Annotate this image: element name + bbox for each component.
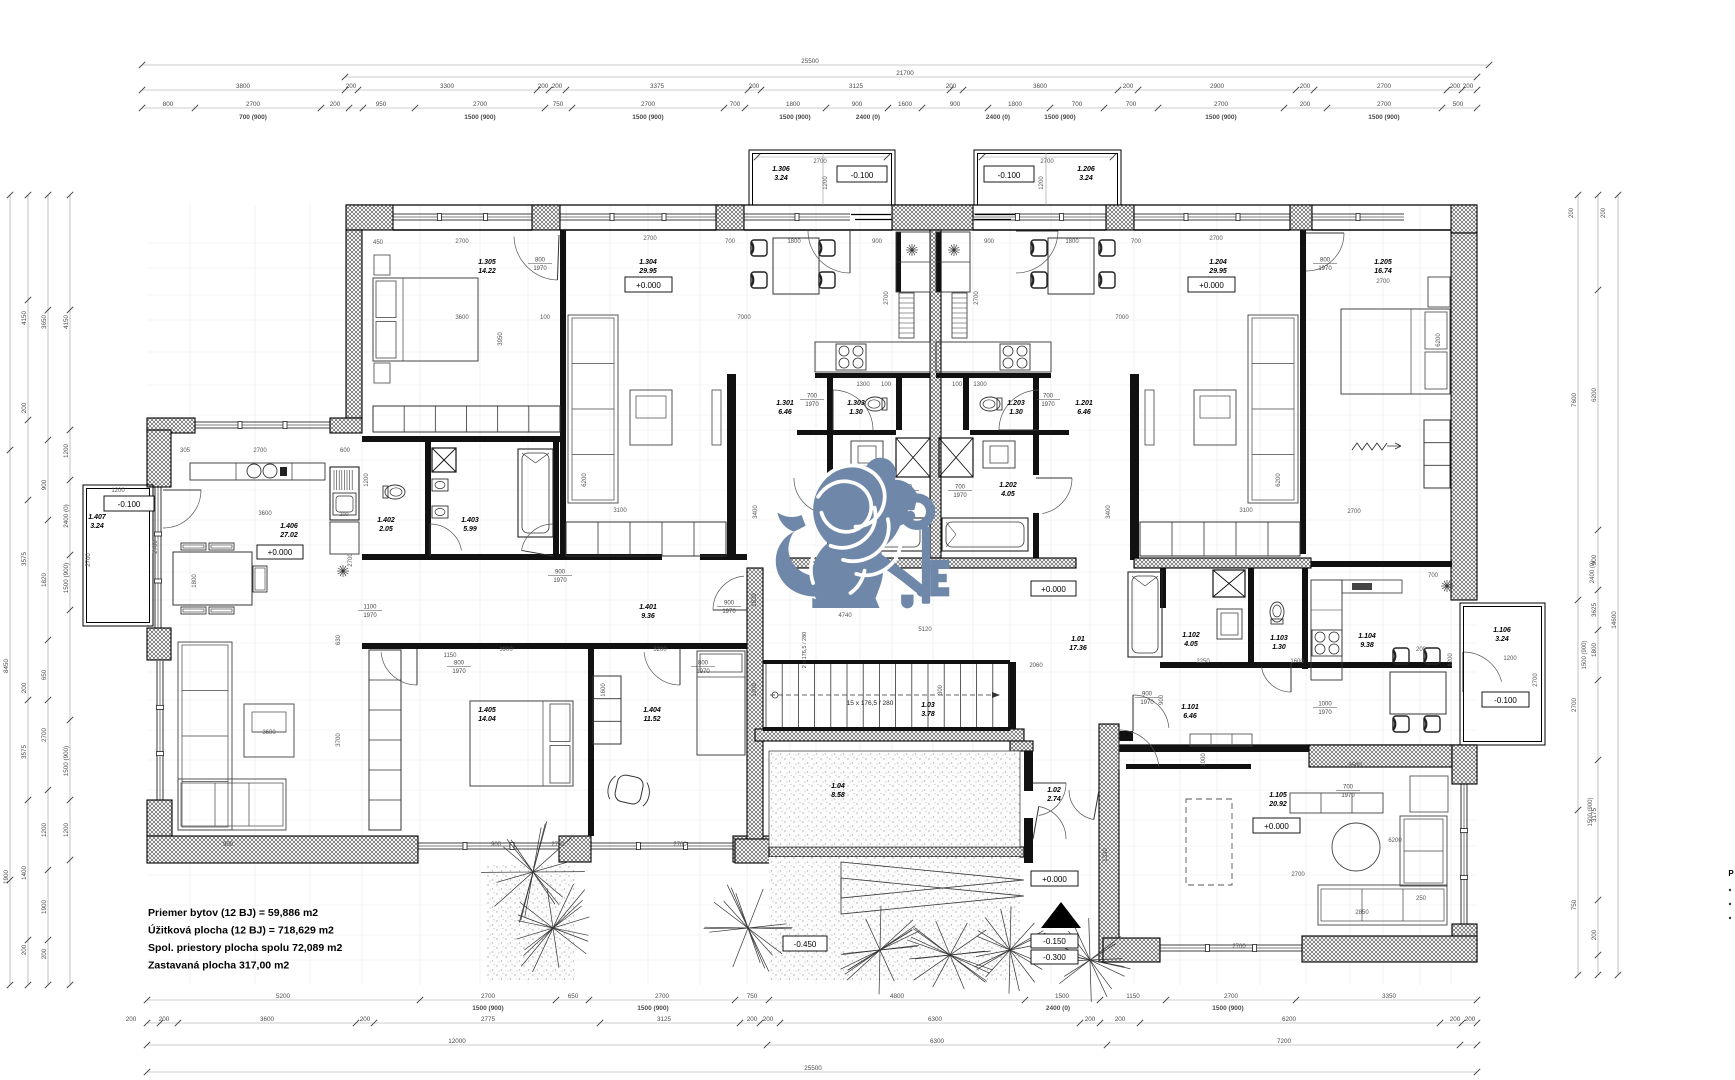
svg-text:1.101: 1.101: [1181, 704, 1199, 711]
svg-text:3600: 3600: [1033, 83, 1048, 90]
svg-text:14600: 14600: [1611, 611, 1618, 629]
svg-text:14.22: 14.22: [478, 268, 496, 275]
svg-text:3575: 3575: [21, 552, 28, 567]
svg-text:-0.100: -0.100: [851, 171, 874, 180]
svg-text:900: 900: [223, 842, 234, 848]
svg-text:3650: 3650: [41, 315, 48, 330]
svg-text:1970: 1970: [452, 669, 466, 675]
svg-text:1.30: 1.30: [1009, 409, 1023, 416]
svg-text:7200: 7200: [1277, 1038, 1292, 1045]
svg-text:200: 200: [1465, 1016, 1476, 1023]
svg-text:750: 750: [747, 993, 758, 1000]
svg-text:1200: 1200: [111, 488, 125, 494]
svg-text:200: 200: [126, 1016, 137, 1023]
svg-text:1800: 1800: [786, 101, 801, 108]
svg-text:900: 900: [950, 101, 961, 108]
svg-text:2400 (0): 2400 (0): [1590, 561, 1596, 583]
svg-text:2.05: 2.05: [378, 526, 393, 533]
svg-text:2700: 2700: [884, 291, 890, 305]
svg-text:1970: 1970: [1318, 266, 1332, 272]
svg-text:700: 700: [1428, 573, 1439, 579]
svg-text:200: 200: [1115, 1016, 1126, 1023]
svg-text:1.201: 1.201: [1075, 400, 1093, 407]
svg-text:3800: 3800: [236, 83, 251, 90]
svg-text:1.405: 1.405: [478, 707, 496, 714]
svg-text:700: 700: [730, 101, 741, 108]
svg-text:2700: 2700: [86, 553, 92, 567]
svg-text:200: 200: [1569, 207, 1575, 218]
svg-text:1500 (900): 1500 (900): [1582, 640, 1588, 669]
svg-text:800: 800: [1320, 258, 1331, 264]
svg-text:3100: 3100: [613, 508, 627, 514]
svg-text:3.24: 3.24: [1495, 636, 1509, 643]
svg-text:3900: 3900: [499, 647, 513, 653]
svg-text:6200: 6200: [1591, 388, 1598, 403]
svg-text:3125: 3125: [849, 83, 864, 90]
svg-text:1.304: 1.304: [639, 259, 657, 266]
svg-text:1.102: 1.102: [1182, 632, 1200, 639]
svg-text:6.46: 6.46: [1183, 713, 1197, 720]
svg-text:2400 (0): 2400 (0): [1046, 1005, 1070, 1012]
svg-text:650: 650: [568, 993, 579, 1000]
svg-text:200: 200: [538, 83, 549, 90]
svg-text:2700: 2700: [455, 239, 469, 245]
svg-text:1200: 1200: [1448, 653, 1454, 667]
svg-text:8450: 8450: [3, 659, 10, 674]
svg-text:4.05: 4.05: [1183, 641, 1198, 648]
svg-text:1.407: 1.407: [88, 514, 107, 521]
svg-text:1200: 1200: [63, 444, 70, 459]
svg-text:900: 900: [41, 479, 48, 490]
svg-text:1970: 1970: [805, 402, 819, 408]
svg-text:2700: 2700: [41, 728, 48, 743]
svg-text:3600: 3600: [455, 315, 469, 321]
svg-text:250: 250: [1416, 896, 1427, 902]
svg-text:3400: 3400: [753, 505, 759, 519]
svg-text:800: 800: [454, 661, 465, 667]
svg-text:1500 (900): 1500 (900): [1588, 797, 1594, 826]
svg-text:200: 200: [21, 944, 28, 955]
svg-text:25500: 25500: [804, 1065, 822, 1072]
svg-text:1.401: 1.401: [639, 604, 657, 611]
svg-text:1000: 1000: [1201, 753, 1207, 767]
svg-text:3100: 3100: [1239, 508, 1253, 514]
svg-text:2850: 2850: [1355, 910, 1369, 916]
svg-text:1000: 1000: [1318, 702, 1332, 708]
svg-text:1.306: 1.306: [772, 166, 790, 173]
svg-text:2700: 2700: [1291, 872, 1305, 878]
svg-text:-0.100: -0.100: [118, 500, 141, 509]
svg-text:700: 700: [1126, 101, 1137, 108]
svg-text:-0.450: -0.450: [794, 940, 817, 949]
svg-text:2700: 2700: [1224, 993, 1239, 1000]
svg-text:800: 800: [535, 258, 546, 264]
svg-text:3700: 3700: [336, 733, 342, 747]
svg-text:2700: 2700: [641, 101, 656, 108]
svg-text:7000: 7000: [1115, 315, 1129, 321]
svg-text:1.04: 1.04: [831, 783, 845, 790]
svg-text:2400 (0): 2400 (0): [63, 504, 70, 527]
svg-text:700 (900): 700 (900): [239, 114, 267, 121]
svg-text:3575: 3575: [21, 745, 28, 760]
svg-text:200: 200: [747, 1016, 758, 1023]
svg-text:2700: 2700: [1040, 159, 1054, 165]
svg-text:1200: 1200: [823, 176, 829, 190]
svg-text:15 x 176,5 / 280: 15 x 176,5 / 280: [847, 700, 894, 707]
svg-text:700: 700: [1043, 394, 1054, 400]
svg-text:200: 200: [1300, 83, 1311, 90]
svg-text:2700: 2700: [551, 842, 565, 848]
svg-text:2775: 2775: [481, 1016, 496, 1023]
svg-text:200: 200: [1450, 83, 1461, 90]
svg-text:2700: 2700: [1533, 673, 1539, 687]
svg-text:6300: 6300: [928, 1016, 943, 1023]
svg-text:1820: 1820: [41, 573, 48, 588]
svg-text:1800: 1800: [787, 239, 801, 245]
svg-text:1970: 1970: [722, 609, 736, 615]
svg-text:1500 (900): 1500 (900): [472, 1005, 503, 1012]
svg-text:1.30: 1.30: [849, 409, 863, 416]
svg-text:1200: 1200: [752, 683, 758, 697]
svg-text:1600: 1600: [1290, 659, 1304, 665]
svg-text:2400 (0): 2400 (0): [986, 114, 1010, 121]
svg-text:2.74: 2.74: [1046, 796, 1061, 803]
svg-text:1800: 1800: [1591, 643, 1598, 658]
svg-text:200: 200: [1450, 1016, 1461, 1023]
svg-text:1500: 1500: [1055, 993, 1070, 1000]
svg-text:200: 200: [346, 83, 357, 90]
svg-text:7000: 7000: [737, 315, 751, 321]
svg-text:1.30: 1.30: [1272, 644, 1286, 651]
svg-text:630: 630: [336, 634, 342, 645]
svg-text:800: 800: [698, 661, 709, 667]
svg-text:1900: 1900: [41, 900, 48, 915]
svg-text:3.24: 3.24: [774, 175, 788, 182]
svg-text:1.205: 1.205: [1374, 259, 1392, 266]
svg-text:1600: 1600: [601, 683, 607, 697]
svg-text:6200: 6200: [1276, 473, 1282, 487]
svg-text:3200: 3200: [653, 647, 667, 653]
svg-text:1.404: 1.404: [643, 707, 661, 714]
svg-text:1620: 1620: [752, 593, 758, 607]
svg-text:900: 900: [724, 601, 735, 607]
svg-text:3375: 3375: [650, 83, 665, 90]
svg-text:1500 (900): 1500 (900): [1205, 114, 1236, 121]
svg-text:16.74: 16.74: [1374, 268, 1392, 275]
svg-text:8.58: 8.58: [831, 792, 845, 799]
svg-text:750: 750: [553, 101, 564, 108]
svg-text:-0.300: -0.300: [1043, 953, 1066, 962]
svg-text:1.301: 1.301: [776, 400, 794, 407]
svg-text:1200: 1200: [1503, 656, 1517, 662]
svg-text:200: 200: [552, 83, 563, 90]
svg-text:1800: 1800: [1008, 101, 1023, 108]
svg-text:3.24: 3.24: [90, 523, 104, 530]
svg-text:11.52: 11.52: [644, 716, 661, 723]
svg-text:1.01: 1.01: [1071, 636, 1085, 643]
svg-text:200: 200: [946, 83, 957, 90]
svg-text:1.105: 1.105: [1269, 792, 1287, 799]
svg-text:3125: 3125: [657, 1016, 672, 1023]
svg-text:2700: 2700: [1347, 509, 1361, 515]
svg-text:1970: 1970: [953, 493, 967, 499]
svg-text:200: 200: [21, 402, 28, 413]
svg-text:2700: 2700: [481, 993, 496, 1000]
svg-text:Spol. priestory plocha spolu 7: Spol. priestory plocha spolu 72,089 m2: [148, 942, 342, 954]
svg-text:1970: 1970: [1341, 793, 1355, 799]
svg-text:-0.100: -0.100: [1494, 696, 1517, 705]
svg-text:200: 200: [1416, 647, 1427, 653]
svg-text:1150: 1150: [444, 653, 458, 659]
svg-text:6200: 6200: [1388, 838, 1402, 844]
svg-text:2700: 2700: [473, 101, 488, 108]
svg-text:2060: 2060: [1029, 663, 1043, 669]
svg-text:800: 800: [163, 101, 174, 108]
svg-text:3400: 3400: [1106, 505, 1112, 519]
svg-text:6200: 6200: [1282, 1016, 1297, 1023]
svg-text:1500 (900): 1500 (900): [1368, 114, 1399, 121]
svg-text:2700: 2700: [1232, 944, 1246, 950]
svg-text:1400: 1400: [21, 866, 28, 881]
svg-text:2700: 2700: [253, 448, 267, 454]
svg-text:2700: 2700: [246, 101, 261, 108]
svg-text:+0.000: +0.000: [636, 281, 661, 290]
svg-text:200: 200: [339, 512, 348, 518]
svg-text:2700: 2700: [974, 291, 980, 305]
svg-text:-0.150: -0.150: [1043, 937, 1066, 946]
svg-text:200: 200: [1463, 83, 1474, 90]
svg-text:1.305: 1.305: [478, 259, 496, 266]
svg-text:Priemer bytov (12 BJ) = 59,886: Priemer bytov (12 BJ) = 59,886 m2: [148, 907, 318, 919]
svg-text:+0.000: +0.000: [1199, 281, 1224, 290]
svg-text:4.05: 4.05: [1000, 491, 1015, 498]
svg-text:1330: 1330: [1103, 848, 1109, 862]
svg-text:1.104: 1.104: [1358, 633, 1376, 640]
svg-text:200: 200: [159, 1016, 170, 1023]
svg-text:1200: 1200: [1039, 176, 1045, 190]
svg-text:200: 200: [21, 682, 28, 693]
svg-text:1900: 1900: [3, 870, 10, 885]
svg-text:700: 700: [1131, 239, 1142, 245]
svg-text:900: 900: [555, 570, 566, 576]
svg-text:1800: 1800: [192, 574, 198, 588]
svg-text:1500 (900): 1500 (900): [63, 746, 70, 776]
svg-text:6300: 6300: [930, 1038, 945, 1045]
svg-text:Úžitková plocha (12 BJ) = 718,: Úžitková plocha (12 BJ) = 718,629 m2: [148, 924, 334, 937]
svg-text:3600: 3600: [258, 511, 272, 517]
svg-text:29.95: 29.95: [1208, 268, 1227, 275]
svg-text:14.04: 14.04: [478, 716, 496, 723]
svg-text:6200: 6200: [582, 473, 588, 487]
svg-text:900: 900: [491, 842, 502, 848]
svg-text:1970: 1970: [696, 669, 710, 675]
svg-text:200: 200: [1123, 83, 1134, 90]
svg-text:9.38: 9.38: [1360, 642, 1374, 649]
svg-text:12000: 12000: [448, 1038, 466, 1045]
svg-text:4150: 4150: [21, 311, 28, 326]
svg-text:100: 100: [952, 382, 963, 388]
svg-text:1200: 1200: [63, 823, 70, 838]
svg-text:+0.000: +0.000: [1042, 875, 1067, 884]
svg-text:2700: 2700: [153, 540, 159, 554]
svg-text:950: 950: [376, 101, 387, 108]
svg-text:1150: 1150: [1126, 993, 1140, 1000]
svg-text:900: 900: [872, 239, 883, 245]
svg-text:1500 (900): 1500 (900): [1044, 114, 1075, 121]
svg-text:200: 200: [41, 948, 48, 959]
svg-text:3950: 3950: [498, 332, 504, 346]
svg-text:1500 (900): 1500 (900): [632, 114, 663, 121]
svg-text:5200: 5200: [276, 993, 291, 1000]
svg-text:1.303: 1.303: [847, 400, 865, 407]
svg-text:900: 900: [1142, 692, 1153, 698]
svg-text:7600: 7600: [1571, 393, 1578, 408]
svg-text:1970: 1970: [553, 578, 567, 584]
svg-text:-0.100: -0.100: [998, 171, 1021, 180]
svg-text:1.206: 1.206: [1077, 166, 1095, 173]
svg-text:1.402: 1.402: [377, 517, 395, 524]
svg-text:2700: 2700: [655, 993, 670, 1000]
svg-text:27.02: 27.02: [279, 532, 298, 539]
svg-text:3350: 3350: [1382, 993, 1397, 1000]
svg-text:2700: 2700: [1571, 698, 1578, 713]
svg-text:1200: 1200: [364, 473, 370, 487]
svg-text:750: 750: [1571, 899, 1578, 910]
svg-text:17.36: 17.36: [1069, 645, 1087, 652]
svg-text:700: 700: [725, 239, 736, 245]
svg-text:200: 200: [360, 1016, 371, 1023]
svg-text:P: P: [1728, 869, 1734, 878]
svg-text:5.99: 5.99: [463, 526, 477, 533]
svg-text:Zastavaná plocha 317,00 m2: Zastavaná plocha 317,00 m2: [148, 960, 289, 972]
svg-text:200: 200: [330, 101, 341, 108]
svg-text:1.103: 1.103: [1270, 635, 1288, 642]
svg-text:21700: 21700: [896, 70, 914, 77]
svg-text:650: 650: [41, 669, 48, 680]
svg-text:1500 (900): 1500 (900): [464, 114, 495, 121]
svg-text:900: 900: [1159, 694, 1165, 705]
svg-text:6.46: 6.46: [778, 409, 792, 416]
svg-text:2700: 2700: [1209, 236, 1223, 242]
svg-text:1.202: 1.202: [999, 482, 1017, 489]
svg-text:1500 (900): 1500 (900): [1212, 1005, 1243, 1012]
svg-text:4150: 4150: [63, 315, 70, 330]
svg-text:20.92: 20.92: [1268, 801, 1287, 808]
svg-text:2700: 2700: [1214, 101, 1229, 108]
svg-text:700: 700: [955, 485, 966, 491]
svg-text:3300: 3300: [440, 83, 455, 90]
svg-text:1.02: 1.02: [1047, 787, 1061, 794]
svg-text:1500 (900): 1500 (900): [637, 1005, 668, 1012]
svg-text:3625: 3625: [1591, 603, 1598, 618]
svg-text:4800: 4800: [890, 993, 905, 1000]
svg-text:100: 100: [881, 382, 892, 388]
svg-text:1300: 1300: [856, 382, 870, 388]
svg-text:2900: 2900: [1210, 83, 1225, 90]
svg-text:1970: 1970: [1041, 402, 1055, 408]
svg-text:1500 (900): 1500 (900): [779, 114, 810, 121]
svg-text:1970: 1970: [363, 613, 377, 619]
svg-text:200: 200: [1591, 929, 1598, 940]
svg-text:450: 450: [373, 240, 384, 246]
svg-text:1.403: 1.403: [461, 517, 479, 524]
svg-text:25500: 25500: [801, 58, 819, 65]
svg-text:2 x 176,5 / 280: 2 x 176,5 / 280: [802, 632, 808, 668]
svg-text:2700: 2700: [348, 553, 354, 567]
svg-text:4740: 4740: [838, 613, 852, 619]
svg-text:1.406: 1.406: [280, 523, 298, 530]
svg-text:2700: 2700: [1376, 279, 1390, 285]
svg-text:5120: 5120: [918, 627, 932, 633]
svg-text:700: 700: [1072, 101, 1083, 108]
svg-text:900: 900: [984, 239, 995, 245]
svg-text:2400 (0): 2400 (0): [856, 114, 880, 121]
svg-text:3600: 3600: [262, 730, 276, 736]
svg-text:3.78: 3.78: [921, 711, 935, 718]
svg-text:2700: 2700: [673, 842, 687, 848]
svg-text:6200: 6200: [1436, 333, 1442, 347]
svg-text:2250: 2250: [1196, 659, 1210, 665]
svg-text:300: 300: [938, 684, 944, 695]
svg-text:1970: 1970: [533, 266, 547, 272]
svg-text:200: 200: [749, 83, 760, 90]
svg-text:1300: 1300: [973, 382, 987, 388]
svg-text:1200: 1200: [41, 823, 48, 838]
svg-text:200: 200: [1300, 101, 1311, 108]
svg-text:900: 900: [852, 101, 863, 108]
svg-text:6.46: 6.46: [1077, 409, 1091, 416]
svg-text:1.03: 1.03: [921, 702, 935, 709]
svg-text:3500: 3500: [1348, 763, 1362, 769]
svg-text:700: 700: [807, 394, 818, 400]
svg-text:1600: 1600: [898, 101, 913, 108]
svg-text:2700: 2700: [1377, 101, 1392, 108]
svg-text:1100: 1100: [364, 605, 378, 611]
svg-text:600: 600: [340, 448, 351, 454]
svg-text:500: 500: [1453, 101, 1464, 108]
svg-text:100: 100: [540, 315, 551, 321]
svg-text:9.36: 9.36: [641, 613, 655, 620]
svg-text:1970: 1970: [1140, 700, 1154, 706]
svg-text:29.95: 29.95: [638, 268, 657, 275]
svg-text:200: 200: [1601, 207, 1607, 218]
svg-text:2700: 2700: [813, 159, 827, 165]
svg-text:2700: 2700: [1377, 83, 1392, 90]
svg-text:+0.000: +0.000: [1041, 585, 1066, 594]
svg-text:1500 (900): 1500 (900): [63, 563, 70, 593]
svg-text:1800: 1800: [1065, 239, 1079, 245]
svg-text:200: 200: [763, 1016, 774, 1023]
svg-text:305: 305: [180, 448, 191, 454]
svg-text:200: 200: [1085, 1016, 1096, 1023]
svg-text:+0.000: +0.000: [268, 548, 293, 557]
svg-text:3600: 3600: [260, 1016, 275, 1023]
svg-text:1.203: 1.203: [1007, 400, 1025, 407]
svg-text:+0.000: +0.000: [1264, 822, 1289, 831]
svg-text:700: 700: [1343, 785, 1354, 791]
svg-text:1.204: 1.204: [1209, 259, 1227, 266]
svg-text:3.24: 3.24: [1079, 175, 1093, 182]
svg-text:1970: 1970: [1318, 710, 1332, 716]
svg-text:2700: 2700: [643, 236, 657, 242]
svg-text:1.106: 1.106: [1493, 627, 1511, 634]
